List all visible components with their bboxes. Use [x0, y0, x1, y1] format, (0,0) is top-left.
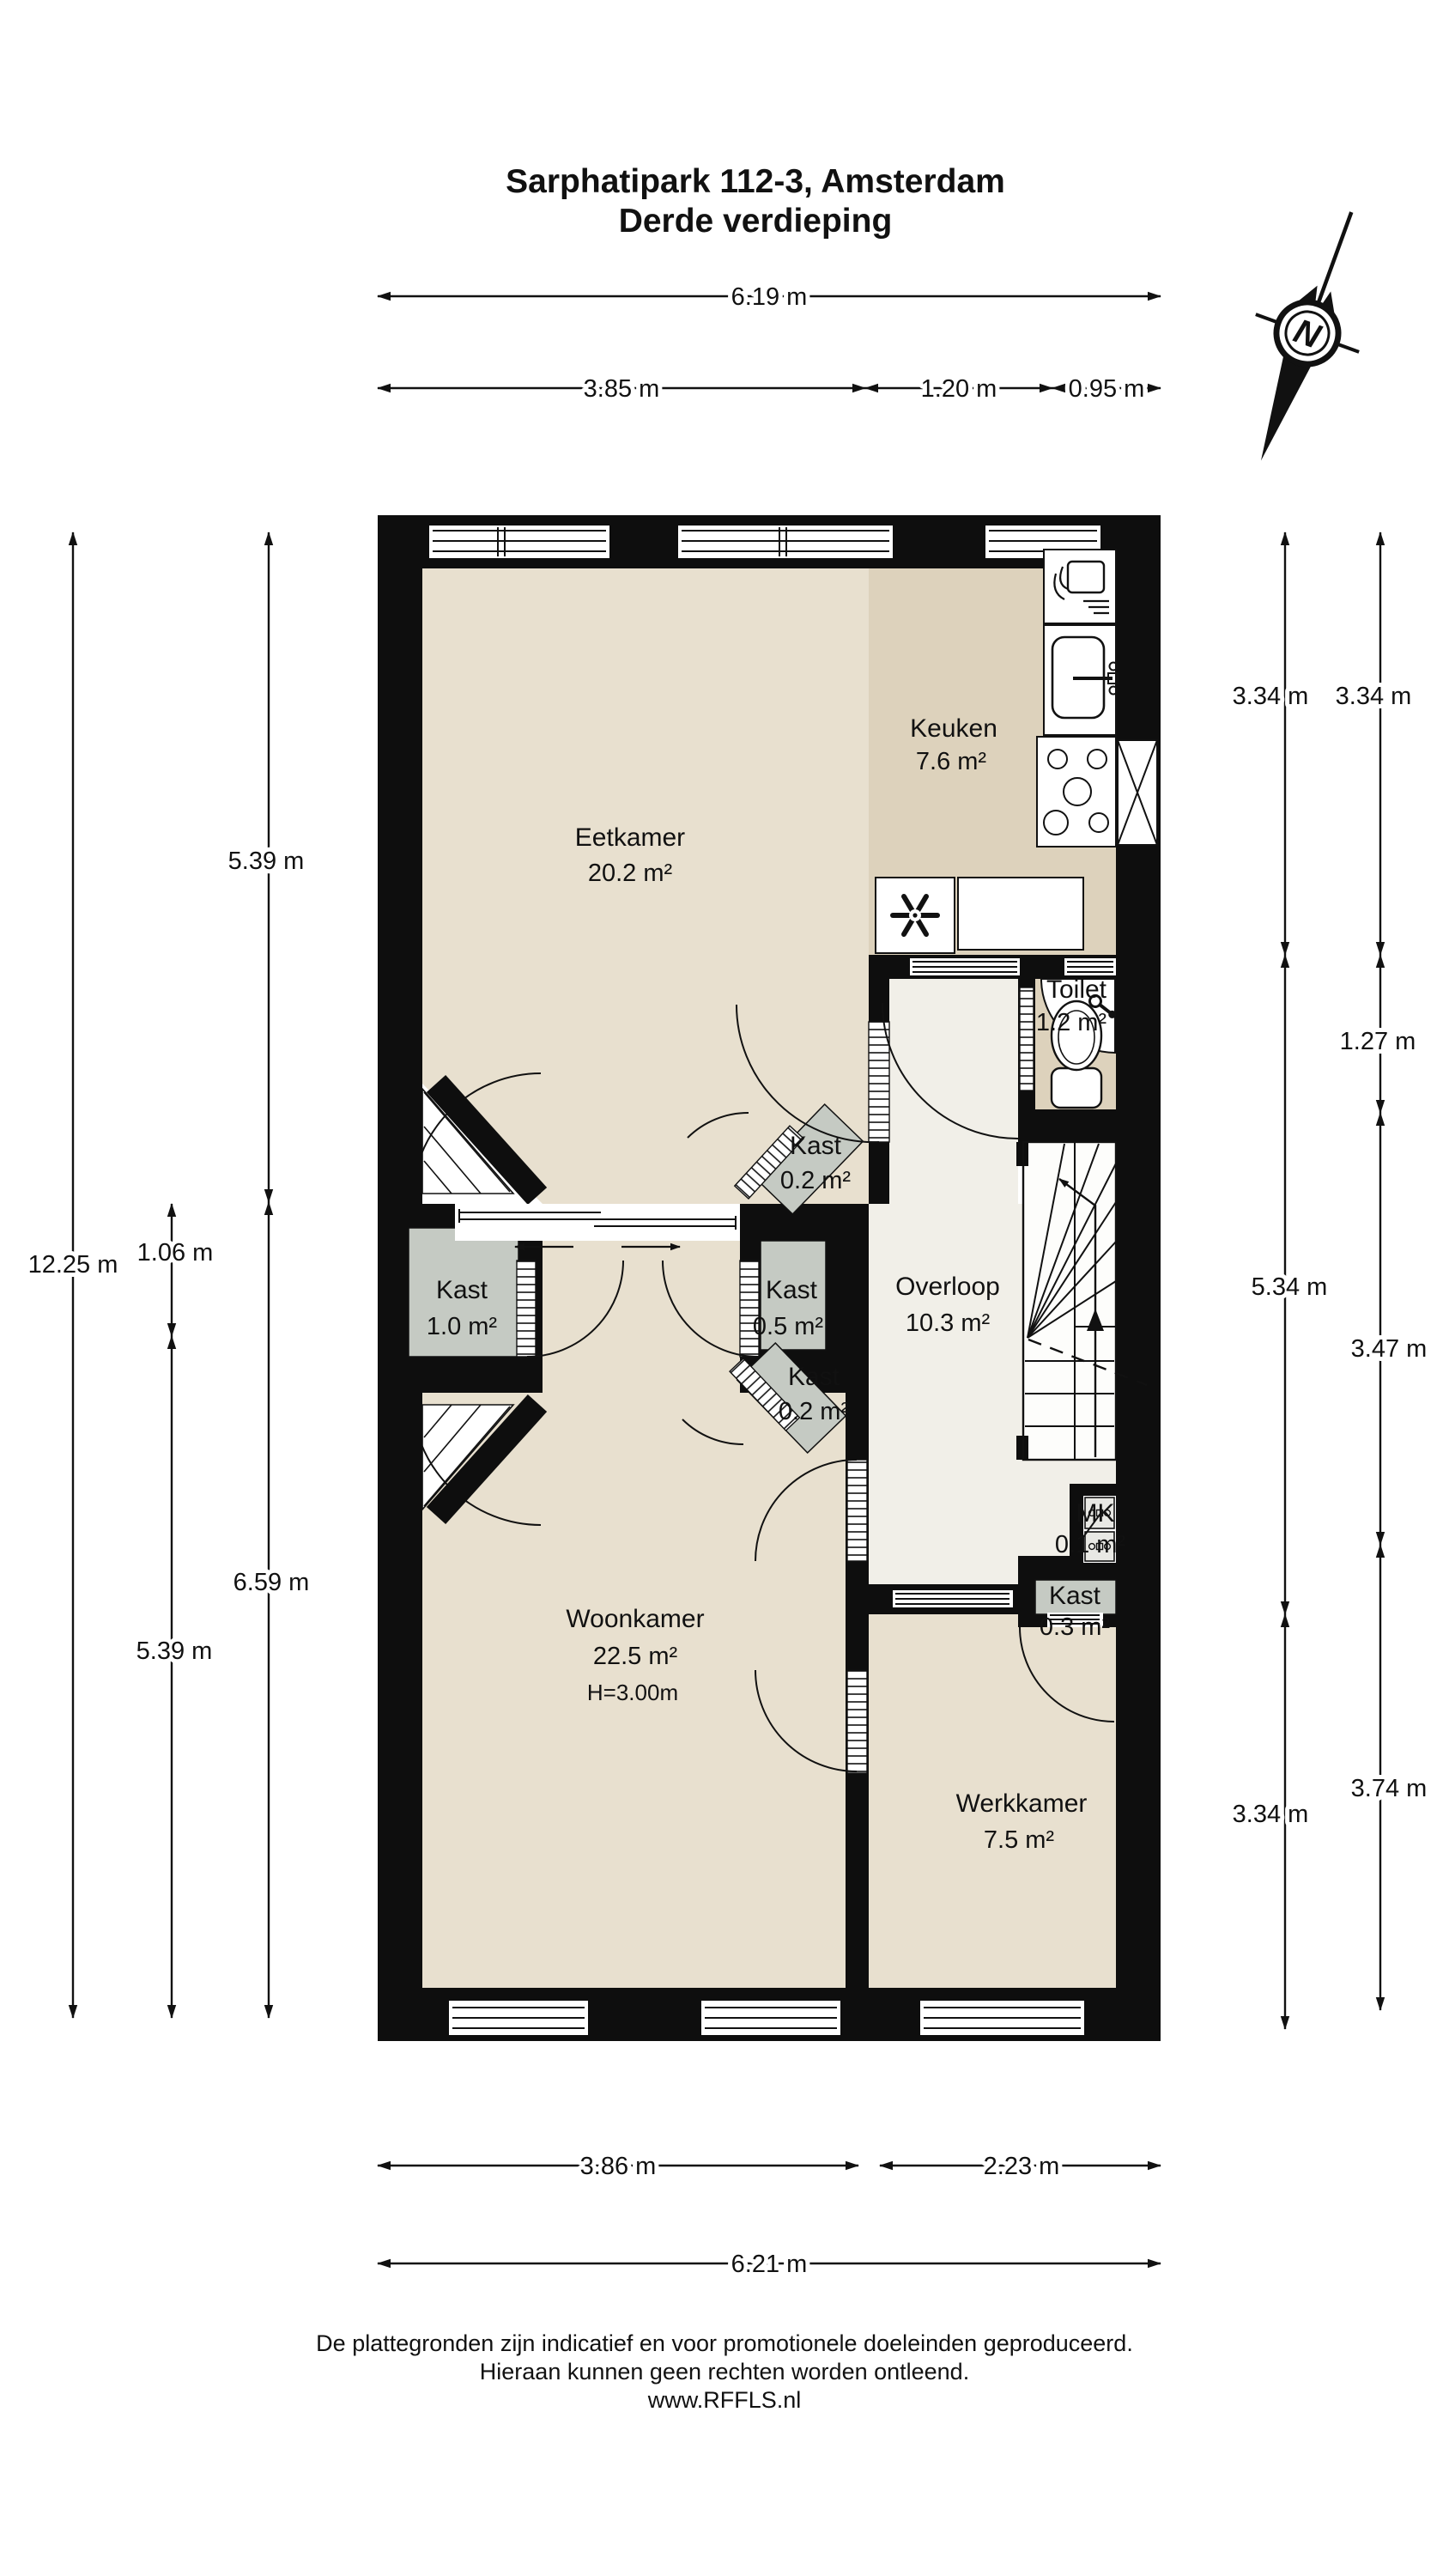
dim-left-inner-upper: 5.39 m [228, 848, 305, 875]
footer-line2: Hieraan kunnen geen rechten worden ontle… [480, 2359, 969, 2385]
dim-bottom-total: 6.21 m [731, 2251, 808, 2278]
woonkamer-overloop-door-leaf [847, 1460, 867, 1561]
dim-right-outer-top: 3.34 m [1336, 683, 1412, 710]
overloop-floor [869, 1204, 1023, 1584]
overloop-area: 10.3 m² [906, 1309, 991, 1337]
dim-right-outer-bottom: 3.74 m [1351, 1775, 1428, 1802]
kitchen-stove-icon [1037, 737, 1116, 847]
mk-wall-top [1070, 1484, 1116, 1496]
footer-website: www.RFFLS.nl [647, 2387, 802, 2413]
window-bottom-2 [701, 2001, 840, 2035]
dim-bottom-left: 3.86 m [580, 2153, 657, 2180]
dim-right-outer-mid: 3.47 m [1351, 1335, 1428, 1363]
keuken-area: 7.6 m² [916, 748, 987, 775]
window-overloop-werkkamer [893, 1590, 1013, 1607]
kast02-lower-area: 0.2 m² [779, 1398, 850, 1425]
kast05-door-leaf [740, 1261, 759, 1357]
werkkamer-label: Werkkamer [956, 1789, 1088, 1818]
mk-area: 0.1 m² [1055, 1531, 1126, 1558]
kitchen-sink-icon [1044, 625, 1118, 735]
window-toilet-top [1064, 958, 1116, 975]
kast05-area: 0.5 m² [753, 1313, 824, 1340]
eetkamer-area: 20.2 m² [588, 860, 673, 887]
dim-left-kast: 1.06 m [137, 1239, 214, 1267]
dim-top-right: 0.95 m [1069, 375, 1145, 403]
footer-disclaimer: De plattegronden zijn indicatief en voor… [316, 2330, 1133, 2413]
eetkamer-door-leaf [869, 1022, 889, 1142]
dim-top-total: 6.19 m [731, 283, 808, 311]
plan-title: Sarphatipark 112-3, Amsterdam Derde verd… [506, 163, 1005, 240]
wall-toilet-bottom [1018, 1109, 1161, 1142]
kast05-label: Kast [766, 1276, 818, 1304]
kast02-upper-area: 0.2 m² [780, 1167, 852, 1194]
footer-line1: De plattegronden zijn indicatief en voor… [316, 2330, 1133, 2356]
keuken-label: Keuken [910, 714, 997, 743]
kast03-area: 0.3 m² [1040, 1613, 1111, 1641]
woonkamer-height: H=3.00m [587, 1680, 678, 1705]
kast03-label: Kast [1049, 1582, 1101, 1610]
overloop-label: Overloop [895, 1273, 1000, 1301]
floorplan-page: { "title": { "address": "Sarphatipark 11… [0, 0, 1449, 2576]
woonkamer-label: Woonkamer [566, 1605, 704, 1633]
floorplan-drawing: Sarphatipark 112-3, Amsterdam Derde verd… [0, 0, 1449, 2576]
sliding-door [455, 1204, 740, 1247]
dim-right-inner-top: 3.34 m [1233, 683, 1309, 710]
mk-label: MK [1076, 1499, 1115, 1528]
window-bottom-1 [449, 2001, 588, 2035]
toilet-label: Toilet [1046, 975, 1107, 1004]
dim-left-lower: 5.39 m [136, 1637, 213, 1665]
dim-right-inner-mid: 5.34 m [1252, 1273, 1328, 1301]
kitchen-counter [958, 878, 1083, 950]
title-floor: Derde verdieping [619, 203, 893, 240]
woonkamer-nook-floor [543, 1241, 740, 1393]
kast02-upper-label: Kast [790, 1132, 842, 1160]
eetkamer-label: Eetkamer [575, 823, 685, 852]
extractor-fan-icon [876, 878, 955, 953]
toilet-area: 1.2 m² [1036, 1009, 1107, 1036]
kast10-label: Kast [436, 1276, 488, 1304]
woonkamer-area: 22.5 m² [593, 1643, 678, 1670]
dim-bottom-right: 2.23 m [984, 2153, 1060, 2180]
dim-left-inner-lower: 6.59 m [233, 1569, 310, 1596]
shaft-icon [1118, 740, 1157, 845]
woonkamer-werkkamer-door-leaf [847, 1670, 867, 1773]
dim-right-inner-bottom: 3.34 m [1233, 1801, 1309, 1828]
kast10-area: 1.0 m² [427, 1313, 498, 1340]
dim-top-left: 3.85 m [584, 375, 660, 403]
dim-top-mid: 1.20 m [921, 375, 997, 403]
window-bottom-3 [920, 2001, 1084, 2035]
window-keuken-overloop [910, 958, 1020, 975]
compass-north-icon: N [1210, 193, 1404, 479]
werkkamer-area: 7.5 m² [984, 1826, 1055, 1854]
kast02-lower-label: Kast [788, 1363, 840, 1391]
corridor-floor [889, 979, 1018, 1204]
title-address: Sarphatipark 112-3, Amsterdam [506, 163, 1005, 200]
kitchen-appliance-icon [1044, 550, 1116, 623]
window-top-1 [429, 526, 609, 558]
dim-right-toilet: 1.27 m [1340, 1028, 1416, 1055]
window-top-2 [678, 526, 893, 558]
kast10-door-leaf [517, 1261, 536, 1357]
window-toilet-overloop [1020, 987, 1034, 1091]
dim-left-total: 12.25 m [28, 1251, 118, 1279]
